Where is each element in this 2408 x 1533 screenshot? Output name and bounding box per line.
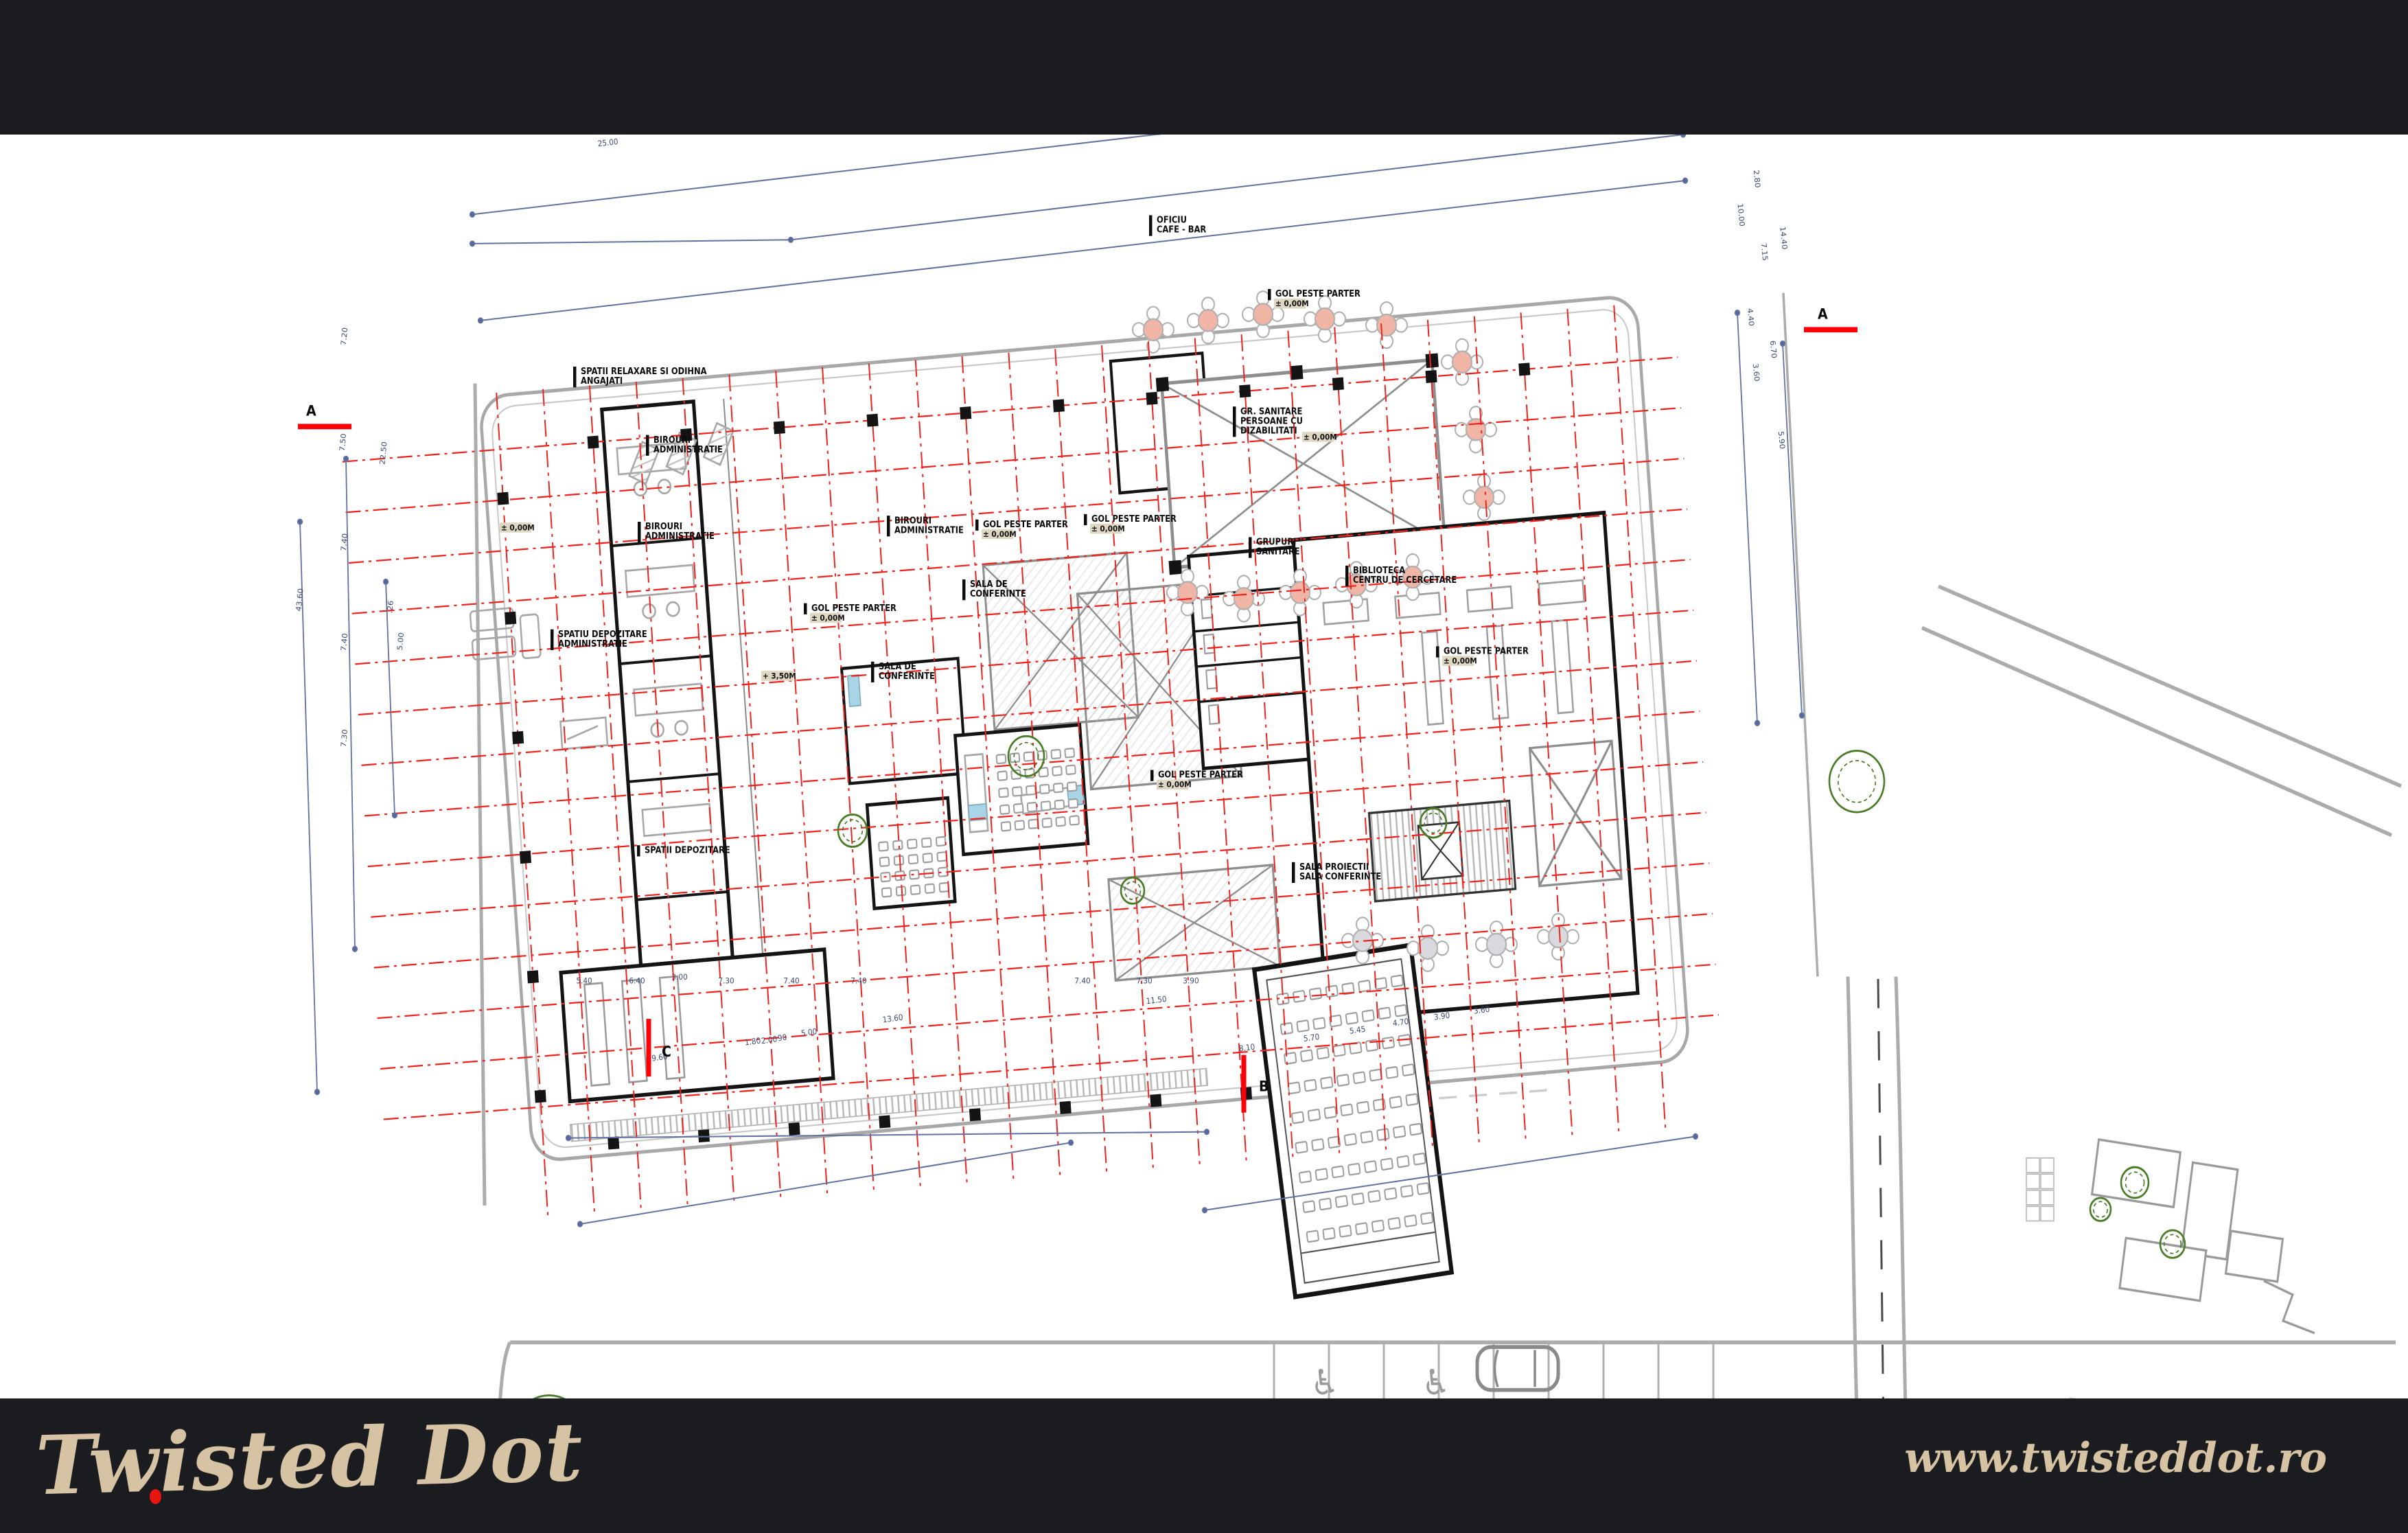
car-icon <box>1477 1347 1558 1390</box>
room-label-text: SANITARE <box>1256 546 1300 557</box>
dimension-text: 7.30 <box>1136 976 1152 986</box>
chair <box>1037 751 1047 760</box>
column <box>879 1115 890 1128</box>
room-label-bar <box>551 630 554 650</box>
plan-linework <box>2026 1158 2054 1221</box>
elevation-label-group: ± 0,00M <box>1302 432 1337 442</box>
chair <box>910 870 919 879</box>
chair <box>1023 752 1033 761</box>
dimension-text: 5.00 <box>395 632 406 651</box>
dimension-tick <box>789 238 793 242</box>
chair <box>1065 748 1074 757</box>
website-url[interactable]: www.twisteddot.ro <box>1904 1434 2327 1482</box>
room-label-bar <box>637 845 640 856</box>
room-label-bar <box>871 662 875 682</box>
room-label-text: BIROURI <box>645 522 682 532</box>
chair <box>997 754 1006 763</box>
chair <box>1321 1077 1333 1089</box>
plan-linework <box>2026 1206 2039 1221</box>
room-label: GRUPURISANITARE <box>1249 537 1300 558</box>
chair <box>1297 1020 1309 1032</box>
table <box>1466 419 1485 440</box>
chair <box>1324 1107 1336 1118</box>
column <box>969 1108 981 1121</box>
plan-linework <box>561 949 833 1101</box>
chair <box>1014 804 1023 813</box>
dimension-text: 7.20 <box>339 327 349 345</box>
chair <box>1368 1190 1380 1202</box>
room-label: SPATII DEPOZITARE <box>637 845 730 857</box>
dimension-text: 5.90 <box>1776 430 1787 449</box>
dimension-tick <box>478 318 483 323</box>
chair <box>1395 1005 1407 1017</box>
section-marker-letter: A <box>306 402 316 419</box>
room-label-text: SPATIU DEPOZITARE <box>558 629 647 639</box>
chair <box>1356 1223 1368 1234</box>
plan-linework <box>2026 1174 2039 1188</box>
room-label-text: ADMINISTRATIE <box>645 531 715 542</box>
chair <box>925 884 935 893</box>
column <box>1518 362 1530 376</box>
column <box>588 435 599 448</box>
chair <box>1389 1096 1402 1108</box>
chair <box>911 885 921 894</box>
room-label-bar <box>962 579 966 600</box>
room-label-text: GOL PESTE PARTER <box>1158 770 1243 780</box>
table <box>1253 303 1273 325</box>
dimension-text: .26 <box>386 600 395 614</box>
logo-red-dot-icon <box>150 1489 161 1504</box>
chair <box>1361 1131 1373 1143</box>
chair <box>1325 985 1338 997</box>
dimension-tick <box>384 579 388 584</box>
chair <box>1345 1134 1357 1146</box>
chair <box>908 855 918 864</box>
plan-linework <box>791 135 1683 240</box>
section-marker-letter: C <box>662 1043 671 1060</box>
chair <box>939 883 949 892</box>
dimension-text: 7.40 <box>850 976 866 986</box>
chair <box>1380 1158 1393 1170</box>
dimension-text: 3.60 <box>1751 363 1761 382</box>
plan-linework <box>2041 1158 2054 1173</box>
table <box>1144 319 1163 341</box>
bottom-bar: Twisted Dot www.twisteddot.ro <box>0 1398 2408 1533</box>
chair <box>1304 1080 1317 1092</box>
room-label-text: BIROURI <box>653 435 691 445</box>
elevation-label: ± 0,00M <box>501 523 535 533</box>
chair <box>1402 1064 1415 1076</box>
tree-icon <box>2090 1198 2111 1221</box>
chair <box>1308 1109 1321 1121</box>
dimension-text: 22.50 <box>378 441 389 465</box>
column <box>497 492 509 505</box>
room-label-bar <box>646 435 649 456</box>
chair <box>1012 787 1022 796</box>
column <box>789 1122 800 1136</box>
chair <box>936 837 946 846</box>
column <box>607 1136 619 1149</box>
elevation-label-group: ± 0,00M <box>500 522 535 533</box>
chair <box>1041 801 1051 810</box>
chair <box>1323 1228 1335 1240</box>
road-cap <box>499 1342 510 1398</box>
column <box>535 1090 546 1103</box>
chair <box>1421 1212 1433 1224</box>
column <box>1332 378 1344 391</box>
room-label-text: CENTRU DE CERCETARE <box>1353 575 1457 585</box>
chair <box>1352 1193 1364 1205</box>
column <box>1146 392 1158 405</box>
car-windshield <box>1495 1350 1536 1387</box>
dimension-tick <box>578 1221 582 1226</box>
table <box>1418 938 1437 959</box>
chair <box>907 840 917 849</box>
plan-linework <box>1156 377 1169 392</box>
chair <box>1303 1201 1315 1212</box>
chair <box>1336 1196 1348 1208</box>
chair <box>1377 1129 1389 1140</box>
dimension-tick <box>1755 721 1759 726</box>
chair <box>1054 783 1063 792</box>
section-marker-letter: B <box>1259 1077 1269 1094</box>
room-label-bar <box>1233 406 1236 437</box>
dimension-text: 4.40 <box>1746 308 1756 326</box>
chair <box>1319 1198 1332 1210</box>
chair <box>1385 1188 1397 1199</box>
chair <box>1299 1171 1312 1183</box>
room-label-text: BIROURI <box>894 516 931 526</box>
chair <box>1066 765 1076 774</box>
chair <box>1000 805 1010 814</box>
room-label: GR. SANITAREPERSOANE CUDIZABILITATI <box>1233 406 1303 437</box>
dimension-text: 3.90 <box>1183 976 1199 986</box>
dimension-tick <box>315 1090 319 1094</box>
chair <box>1369 1070 1382 1081</box>
road-centerline-dark <box>1878 979 1885 1398</box>
courtyard-cluster <box>2026 1140 2315 1333</box>
elevation-label: ± 0,00M <box>1444 656 1477 666</box>
dimension-tick <box>393 813 397 818</box>
column <box>505 612 516 625</box>
chair <box>1339 1225 1352 1237</box>
dimension-text: 7.30 <box>339 729 349 748</box>
room-label-text: CONFERINTE <box>970 589 1026 599</box>
section-marker: A <box>1804 306 1857 330</box>
tree-crown-inner <box>2094 1201 2107 1217</box>
dimension-tick <box>1681 135 1685 137</box>
chair <box>1313 1017 1325 1029</box>
tree-icon <box>2160 1230 2185 1258</box>
chair <box>1337 1074 1350 1086</box>
chair <box>1388 1218 1400 1230</box>
road-edge <box>1896 977 1910 1398</box>
room-label-text: SALA CONFERINTE <box>1299 871 1381 881</box>
column <box>1150 1094 1161 1107</box>
dimension-text: 90 <box>777 1033 787 1043</box>
table <box>1199 310 1218 331</box>
chair <box>1346 1013 1358 1024</box>
plan-linework <box>2264 1281 2315 1333</box>
section-marker-letter: A <box>1818 306 1828 323</box>
room-label-text: CAFE - BAR <box>1157 224 1207 235</box>
room-label-text: DIZABILITATI <box>1240 426 1297 436</box>
room-label: SALA PROIECTIISALA CONFERINTE <box>1292 862 1381 883</box>
room-label: GOL PESTE PARTER± 0,00M <box>1268 289 1361 309</box>
chair <box>1332 1166 1344 1177</box>
room-label-bar <box>638 522 641 542</box>
plan-linework <box>1290 365 1303 380</box>
chair <box>1348 1164 1361 1175</box>
chair <box>1386 1067 1398 1079</box>
chair <box>1417 1183 1429 1195</box>
plan-linework <box>2041 1190 2054 1205</box>
chair <box>937 852 947 861</box>
dimension-text: 7.40 <box>1074 976 1090 986</box>
room-label-bar <box>1084 514 1087 525</box>
room-label-text: GOL PESTE PARTER <box>983 519 1068 529</box>
chair <box>894 856 904 865</box>
plan-linework <box>1426 353 1439 368</box>
chair <box>1069 816 1079 825</box>
column <box>698 1129 710 1142</box>
table <box>1315 308 1334 330</box>
room-label-text: ANGAJATI <box>581 376 623 387</box>
chair <box>1401 1186 1413 1197</box>
dimension-text: 7.15 <box>1759 242 1770 261</box>
room-label-text: SALA DE <box>970 579 1008 590</box>
room-label-text: SALA DE <box>879 661 916 671</box>
dimension-text: 7.40 <box>339 633 349 652</box>
chair <box>1015 820 1024 829</box>
table <box>1549 926 1568 947</box>
site-edge <box>1783 293 1818 977</box>
chair <box>1372 1220 1385 1232</box>
chair <box>1301 1050 1313 1061</box>
plan-linework: ♿♿ SPATII RELAXARE SI ODIHNAANGAJATIBIRO… <box>294 135 2401 1398</box>
chair <box>1312 1139 1324 1151</box>
chair <box>1393 1126 1406 1138</box>
elevation-label: ± 0,00M <box>1275 299 1309 309</box>
chair <box>1317 1048 1329 1059</box>
chair <box>1391 975 1403 987</box>
chair <box>1280 1023 1293 1035</box>
column <box>1426 370 1437 383</box>
dimension-text: 7.40 <box>339 533 349 551</box>
room-label-text: PERSOANE CU <box>1240 416 1303 426</box>
dimension-text: 43.60 <box>294 588 305 612</box>
dimension-tick <box>1069 1140 1073 1145</box>
chair <box>997 771 1007 780</box>
room-label-text: BIBLIOTECA <box>1353 565 1406 575</box>
table <box>1377 314 1396 336</box>
plan-linework <box>346 459 355 949</box>
dimension-tick <box>1203 1208 1207 1212</box>
room-label-bar <box>887 516 890 536</box>
chair <box>1028 803 1037 811</box>
column <box>1239 384 1251 397</box>
room-label-text: GOL PESTE PARTER <box>1275 289 1361 299</box>
elevation-label: ± 0,00M <box>1091 524 1125 533</box>
room-label-text: CONFERINTE <box>879 671 935 681</box>
chair <box>1357 1102 1369 1114</box>
column <box>960 406 971 419</box>
column <box>774 421 785 434</box>
chair <box>1382 1037 1395 1049</box>
chair <box>1397 1156 1409 1168</box>
room-label: OFICIUCAFE - BAR <box>1149 215 1207 236</box>
room-label-text: SALA PROIECTII <box>1299 862 1369 872</box>
chair <box>1341 1104 1353 1116</box>
wheelchair-icon: ♿ <box>1310 1362 1339 1398</box>
dimension-tick <box>566 1136 570 1140</box>
room-label-text: SPATII RELAXARE SI ODIHNA <box>581 367 707 377</box>
parking-area: ♿♿ <box>1274 1342 1713 1398</box>
chair <box>1068 799 1078 808</box>
chair <box>1288 1082 1300 1094</box>
dimension-tick <box>344 457 348 461</box>
room-label-text: GRUPURI <box>1256 537 1296 547</box>
room-label-bar <box>804 603 807 614</box>
room-label-bar <box>975 520 979 531</box>
plan-root: ♿♿ SPATII RELAXARE SI ODIHNAANGAJATIBIRO… <box>294 135 2401 1398</box>
column <box>527 970 539 983</box>
chair <box>1378 1007 1391 1019</box>
dimension-text: 3.00 <box>671 973 687 982</box>
plan-linework <box>2225 1231 2282 1282</box>
plan-linework <box>2041 1206 2054 1221</box>
plan-linework <box>580 1142 1071 1224</box>
chair <box>1353 1072 1365 1083</box>
chair <box>1306 1230 1319 1242</box>
chair <box>1406 1094 1418 1105</box>
road-edge <box>1938 586 2401 786</box>
dimension-tick <box>470 212 474 217</box>
chair <box>1040 785 1050 794</box>
presentation-board: ♿♿ SPATII RELAXARE SI ODIHNAANGAJATIBIRO… <box>0 0 2408 1533</box>
chair <box>1067 782 1077 791</box>
chair <box>1002 822 1011 831</box>
dimension-tick <box>353 947 357 952</box>
dimension-tick <box>1800 713 1804 717</box>
chair <box>1362 1010 1374 1022</box>
plan-linework <box>848 675 861 706</box>
room-label-text: GOL PESTE PARTER <box>811 603 896 613</box>
dimension-text: 10.00 <box>1736 203 1746 227</box>
wheelchair-icon: ♿ <box>1422 1362 1450 1398</box>
dimension-text: 14.40 <box>1779 226 1789 250</box>
dimension-tick <box>1735 310 1739 315</box>
chair <box>1028 819 1038 828</box>
dimension-tick <box>1683 178 1687 183</box>
room-label-bar <box>1436 646 1439 657</box>
room-label-text: SPATII DEPOZITARE <box>645 845 730 855</box>
plan-linework <box>472 135 1668 214</box>
room-label-text: GOL PESTE PARTER <box>1444 646 1529 656</box>
dimension-tick <box>298 519 302 524</box>
dimension-tick <box>1781 341 1785 346</box>
dimension-tick <box>1205 1129 1209 1134</box>
elevation-label-group: + 3,50M <box>761 671 796 681</box>
chair <box>1315 1168 1328 1180</box>
elevation-label: ± 0,00M <box>1304 433 1337 442</box>
plan-linework <box>2120 1238 2206 1301</box>
chair <box>1055 800 1065 809</box>
room-label-bar <box>1345 566 1349 586</box>
chair <box>1056 817 1065 826</box>
floor-plan-drawing: ♿♿ SPATII RELAXARE SI ODIHNAANGAJATIBIRO… <box>0 135 2408 1398</box>
column <box>867 414 879 427</box>
plan-linework <box>1168 560 1181 575</box>
dimension-text: 6.40 <box>629 976 645 986</box>
dimension-text: 6.70 <box>1768 340 1779 358</box>
elevation-label: ± 0,00M <box>983 529 1017 539</box>
site-edge <box>475 384 485 1206</box>
room-label-text: ADMINISTRATIE <box>653 444 723 454</box>
room-label-bar <box>1268 289 1271 300</box>
dimension-text: 25.00 <box>597 137 618 148</box>
chair <box>896 886 906 895</box>
chair <box>1310 988 1322 1000</box>
top-bar <box>0 0 2408 135</box>
dimension-text: 5.40 <box>576 976 592 986</box>
table <box>1290 581 1310 603</box>
table <box>1452 351 1472 373</box>
column <box>1060 1101 1072 1114</box>
table <box>1234 588 1253 609</box>
plan-linework <box>2026 1158 2039 1173</box>
column <box>512 731 524 744</box>
chair <box>923 853 932 862</box>
table <box>1474 487 1494 508</box>
plan-linework <box>481 181 1685 321</box>
chair <box>879 842 888 851</box>
chair <box>1292 1112 1304 1124</box>
chair <box>1413 1153 1426 1165</box>
column <box>1053 399 1065 412</box>
room-label-bar <box>1292 862 1295 883</box>
plan-linework <box>2041 1174 2054 1188</box>
room-label-text: ADMINISTRATIE <box>558 638 627 649</box>
table <box>1487 934 1506 955</box>
chair <box>1052 766 1062 775</box>
chair <box>1042 818 1052 827</box>
chair <box>880 857 890 866</box>
tree-crown-inner <box>1838 761 1875 803</box>
room-label-text: GR. SANITARE <box>1240 406 1302 417</box>
chair <box>1358 980 1371 992</box>
dimension-text: 7.50 <box>338 433 348 452</box>
plan-linework <box>1783 343 1802 715</box>
room-label-bar <box>1149 216 1153 236</box>
dimension-text: 2.80 <box>1752 170 1762 188</box>
chair <box>1051 750 1061 759</box>
room-label-bar <box>573 367 577 387</box>
road-edge <box>1922 627 2392 835</box>
room-label-bar <box>1150 770 1154 781</box>
chair <box>1410 1124 1422 1136</box>
room-label-bar <box>1249 537 1252 557</box>
chair <box>1333 1045 1345 1057</box>
chair <box>882 888 892 897</box>
room-label-text: OFICIU <box>1157 215 1187 225</box>
room-label-text: GOL PESTE PARTER <box>1091 514 1177 524</box>
dimension-tick <box>1693 1134 1698 1139</box>
road-edge <box>1848 977 1862 1398</box>
elevation-label: + 3,50M <box>763 671 796 681</box>
tree-icon <box>1829 751 1884 813</box>
chair <box>1365 1161 1377 1173</box>
